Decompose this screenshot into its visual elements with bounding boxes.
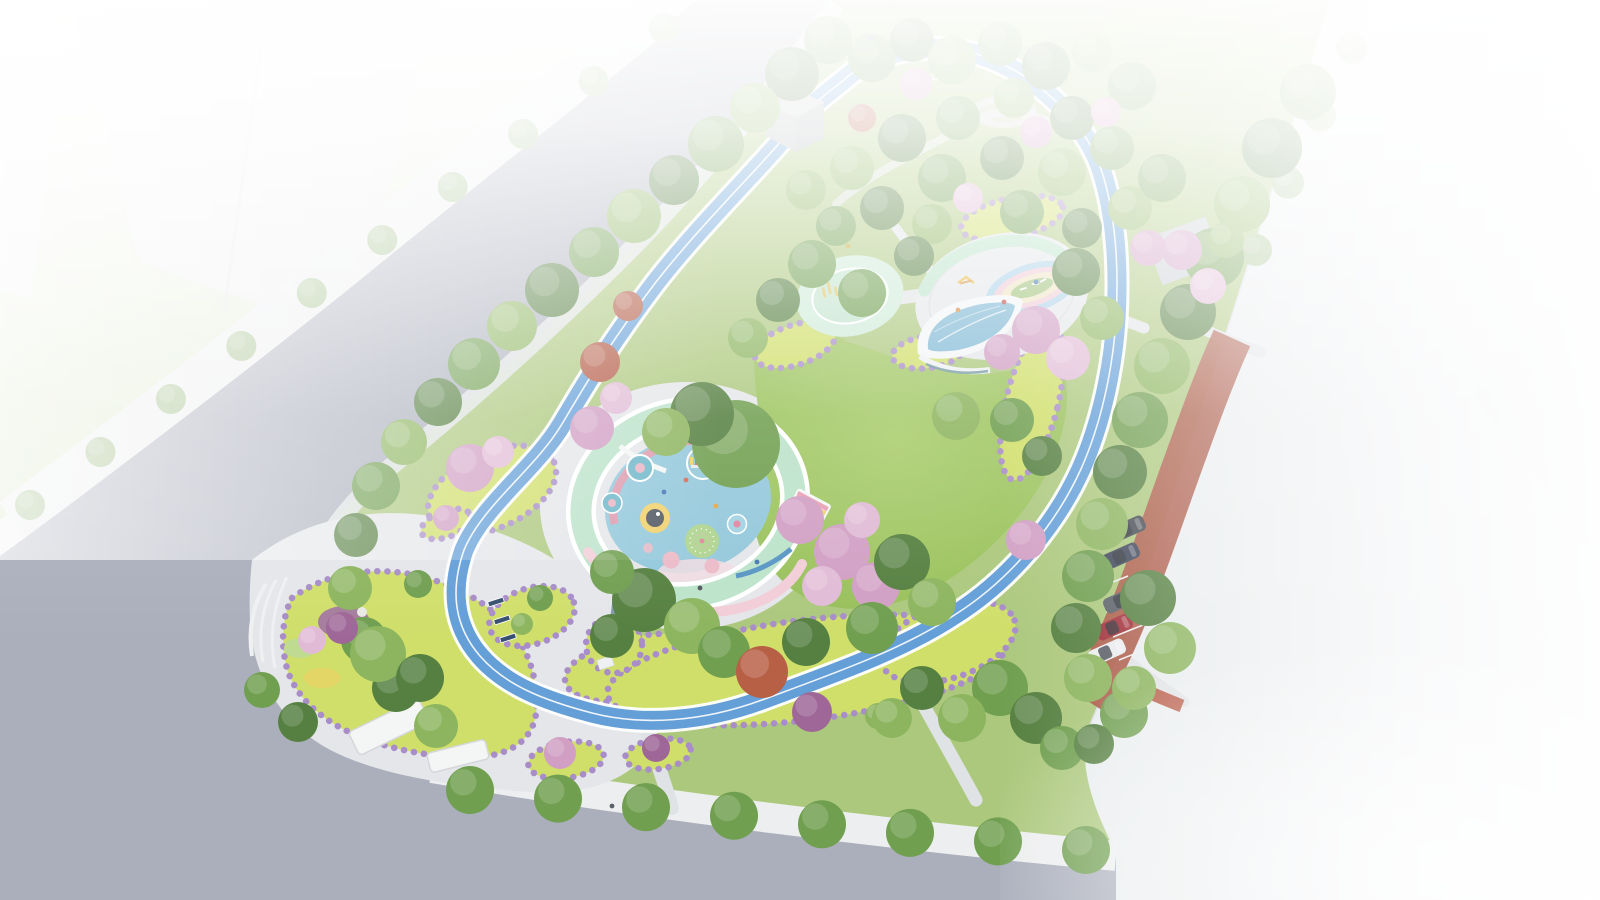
- park-aerial-rendering: [0, 0, 1600, 900]
- rendering-stage: [0, 0, 1600, 900]
- fog-layer: [0, 0, 1600, 900]
